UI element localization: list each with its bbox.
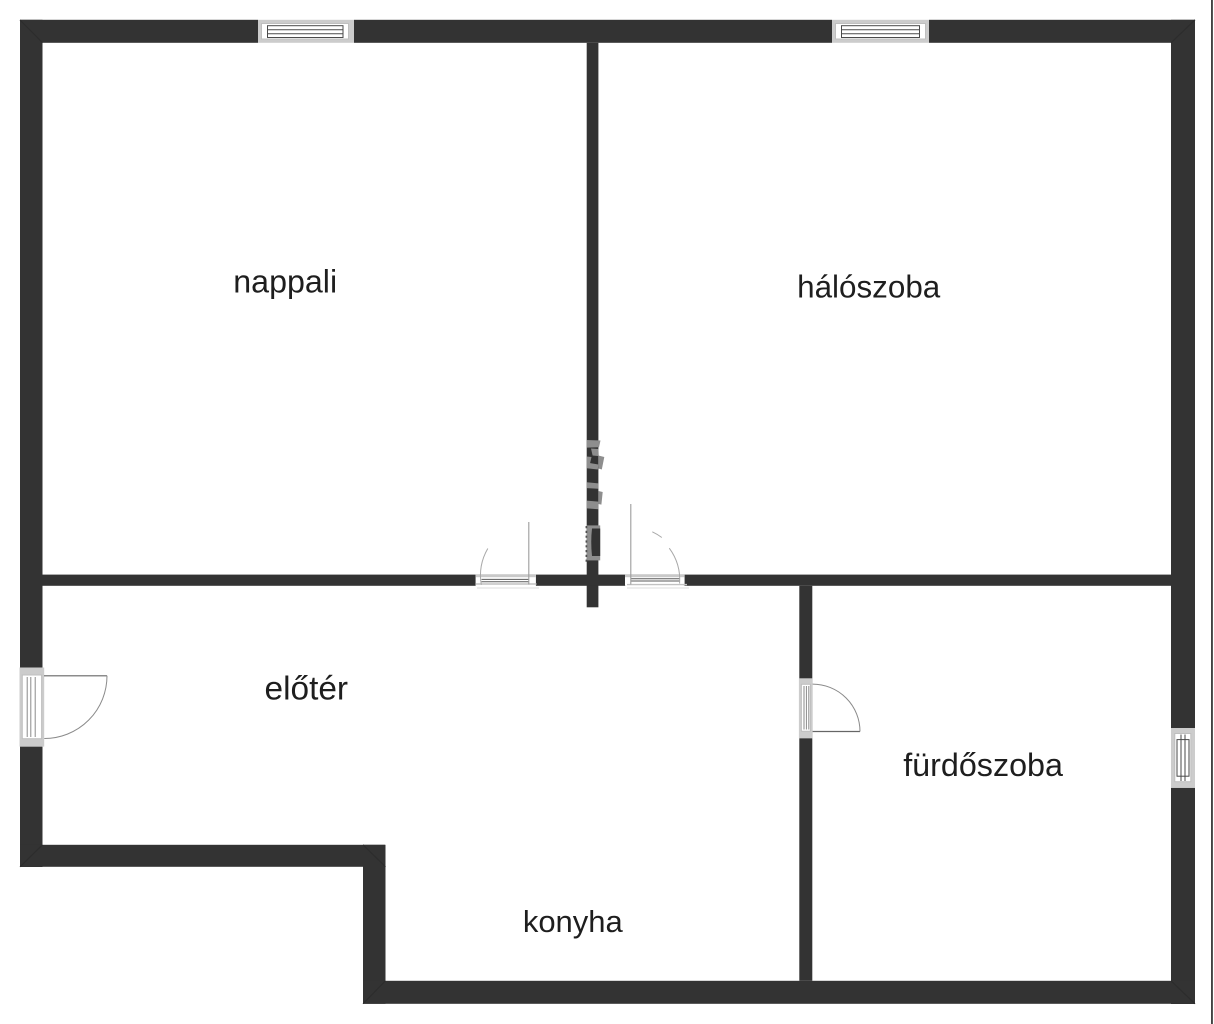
svg-text:nappali: nappali: [233, 264, 337, 300]
svg-text:konyha: konyha: [523, 904, 624, 939]
svg-text:hálószoba: hálószoba: [797, 269, 941, 304]
svg-text:fürdőszoba: fürdőszoba: [903, 747, 1063, 783]
svg-text:előtér: előtér: [265, 670, 349, 707]
